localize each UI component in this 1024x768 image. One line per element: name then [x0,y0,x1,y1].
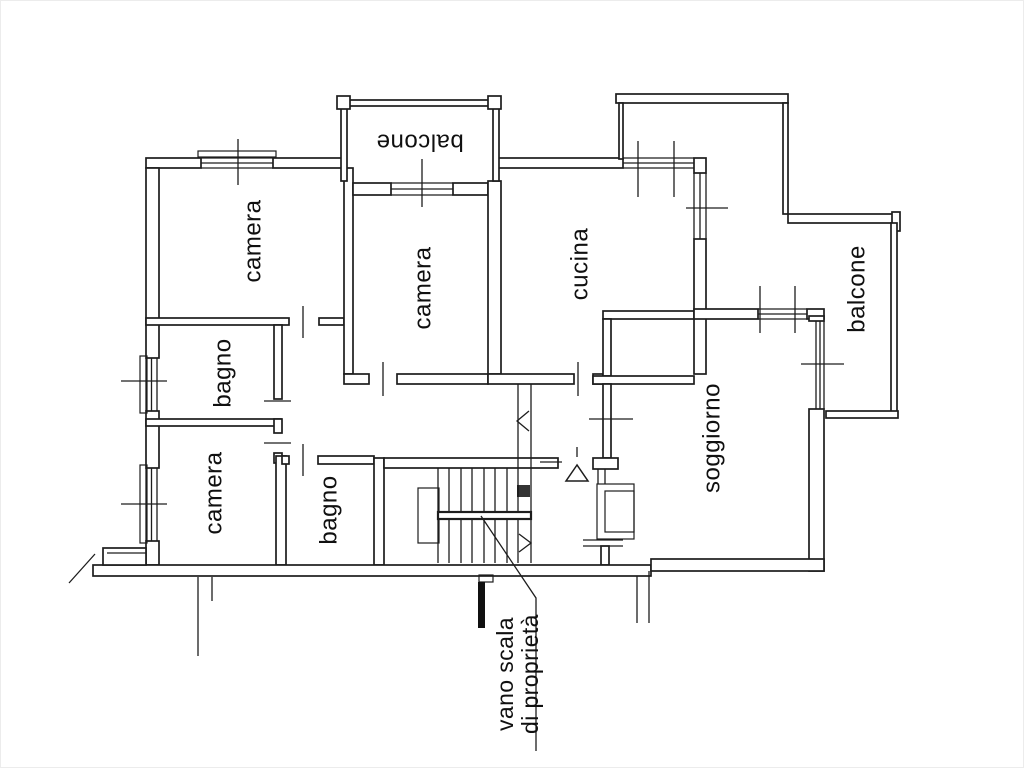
fixture [597,484,634,539]
room-label-bagno-lower: bagno [316,475,343,544]
stair-direction-arrows [517,411,531,552]
room-label-camera-top-left: camera [240,199,267,282]
room-label-balcone-top: balcone [376,129,464,156]
room-labels: camera bagno camera bagno camera cucina … [201,129,871,735]
stair-note-line1: vano scala [492,617,518,731]
room-label-soggiorno: soggiorno [699,383,726,493]
stair-break-mark [517,485,530,497]
room-label-balcone-right: balcone [844,245,871,333]
floor-plan-page: camera bagno camera bagno camera cucina … [0,0,1024,768]
floor-plan-drawing: camera bagno camera bagno camera cucina … [1,1,1024,768]
room-label-camera-lower: camera [201,451,228,534]
stair-rail [438,512,531,519]
room-label-camera-middle: camera [410,246,437,329]
stair-note-line2: di proprietà [517,614,543,734]
room-label-cucina: cucina [567,228,594,301]
room-label-bagno-upper: bagno [210,338,237,407]
entrance-door-icon [566,465,588,481]
stairwell-wall-mark [478,582,485,628]
